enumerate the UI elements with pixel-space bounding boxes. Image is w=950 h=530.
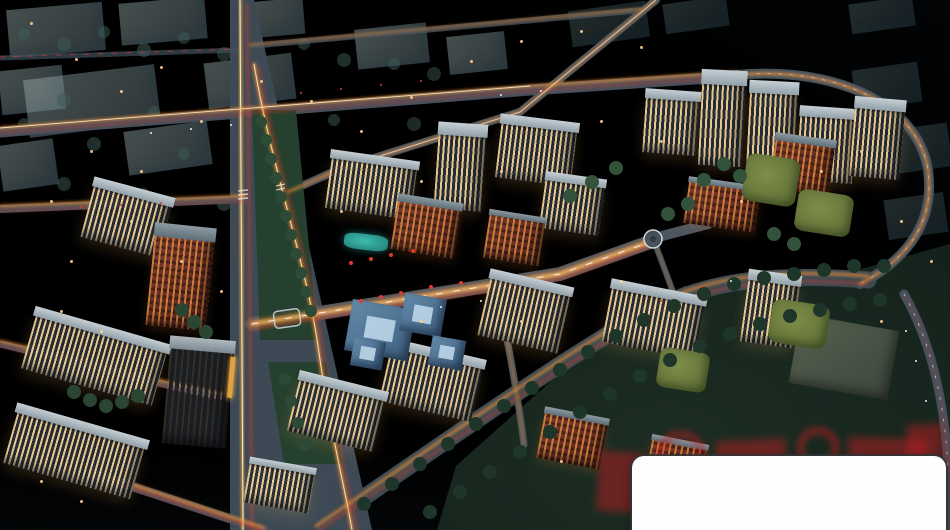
avenue-median-green xyxy=(252,110,318,340)
brick-building xyxy=(483,214,545,266)
lit-tower xyxy=(642,96,700,156)
headlights xyxy=(0,0,2,2)
lawn xyxy=(793,188,855,238)
lawn xyxy=(767,298,831,351)
lawn xyxy=(655,346,711,393)
aerial-night-rendering: Floor space: 105000m2 First-stage projec… xyxy=(0,0,950,530)
lawn xyxy=(741,152,802,208)
blue-roof-building xyxy=(350,337,386,370)
brick-building xyxy=(145,233,214,331)
blue-roof-building xyxy=(428,335,467,370)
dark-tower xyxy=(162,345,234,448)
lit-tower xyxy=(539,178,605,236)
brick-building xyxy=(390,199,461,258)
lit-tower xyxy=(849,106,905,180)
lit-tower xyxy=(698,81,746,167)
blue-roof-building xyxy=(399,293,447,338)
info-overlay: Floor space: 105000m2 First-stage projec… xyxy=(632,456,946,530)
